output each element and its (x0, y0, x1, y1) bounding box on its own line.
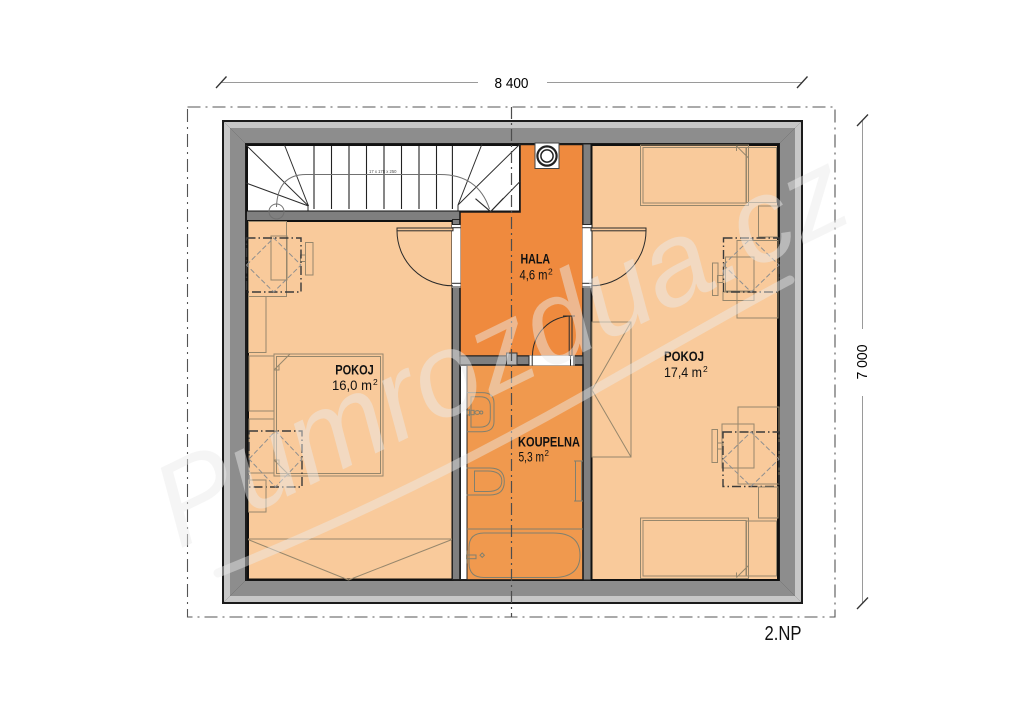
svg-text:17,4 m: 17,4 m (664, 364, 702, 380)
svg-text:8 400: 8 400 (495, 76, 529, 92)
svg-text:17 x 178 x 250: 17 x 178 x 250 (369, 169, 397, 174)
svg-text:7 000: 7 000 (855, 345, 871, 380)
svg-text:KOUPELNA: KOUPELNA (518, 434, 580, 450)
svg-text:2.NP: 2.NP (765, 622, 802, 645)
svg-text:2: 2 (545, 449, 550, 458)
svg-text:5,3 m: 5,3 m (519, 449, 545, 465)
svg-text:2: 2 (703, 364, 708, 374)
